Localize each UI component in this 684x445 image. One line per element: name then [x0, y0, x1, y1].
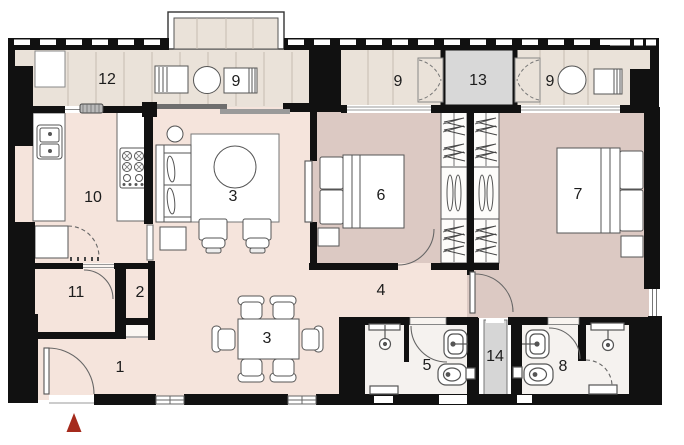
svg-text:11: 11	[68, 284, 85, 301]
svg-text:9: 9	[546, 73, 555, 90]
svg-text:14: 14	[486, 348, 504, 365]
svg-text:12: 12	[98, 71, 116, 88]
svg-text:7: 7	[574, 186, 583, 203]
svg-text:3: 3	[263, 330, 272, 347]
svg-text:5: 5	[423, 357, 432, 374]
svg-text:13: 13	[469, 72, 487, 89]
svg-text:2: 2	[136, 284, 145, 301]
svg-text:8: 8	[559, 358, 568, 375]
svg-text:3: 3	[229, 188, 238, 205]
svg-text:9: 9	[232, 73, 241, 90]
svg-text:4: 4	[377, 282, 386, 299]
svg-text:9: 9	[394, 73, 403, 90]
svg-text:6: 6	[377, 187, 386, 204]
svg-text:1: 1	[116, 359, 125, 376]
svg-text:10: 10	[84, 189, 102, 206]
